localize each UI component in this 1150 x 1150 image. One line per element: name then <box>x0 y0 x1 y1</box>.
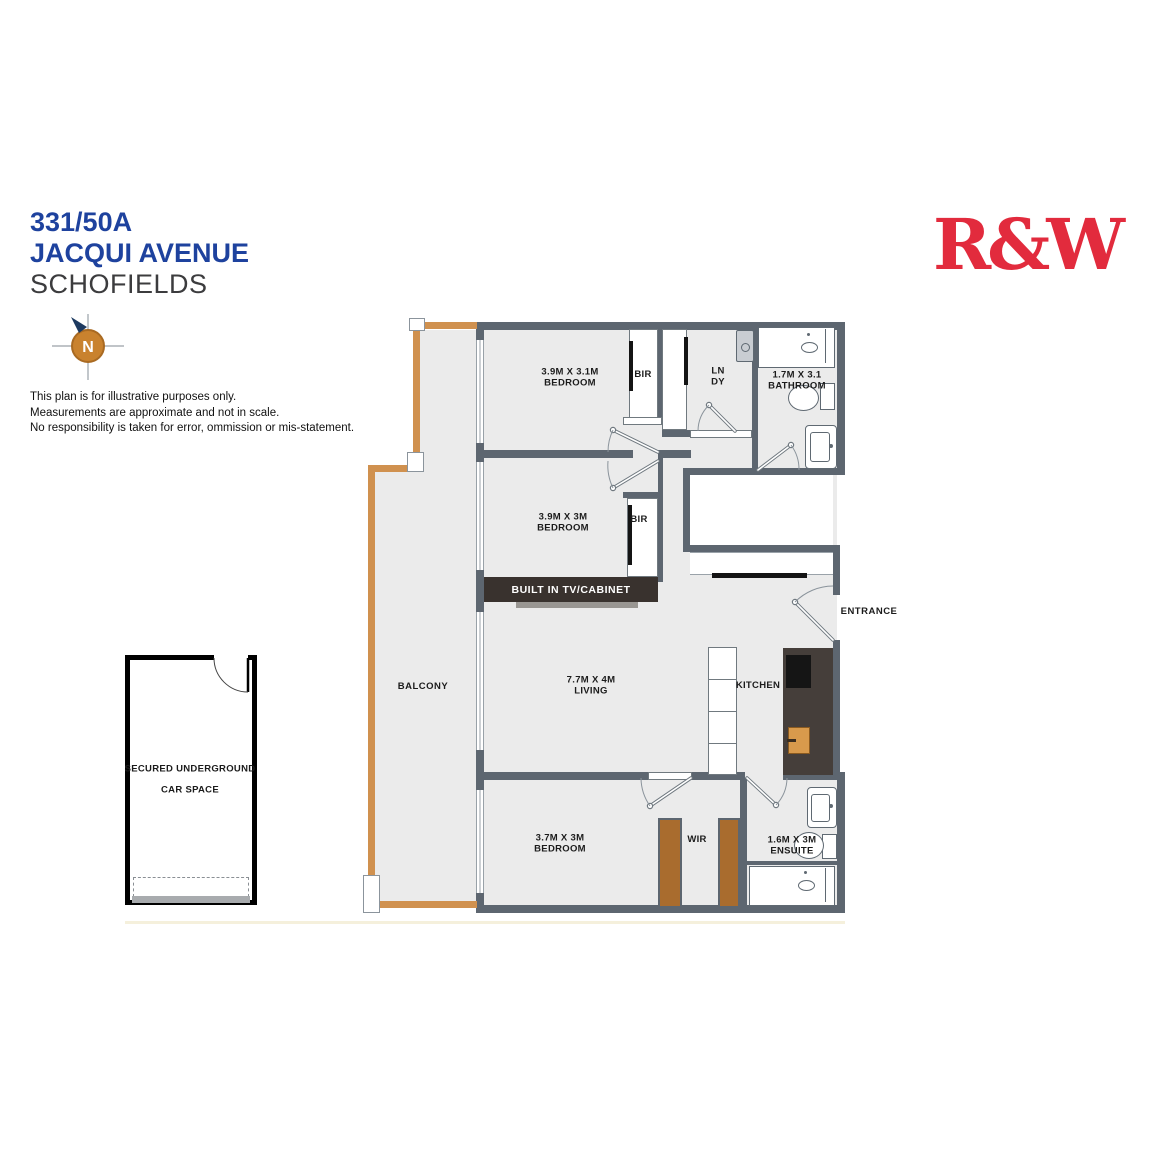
car-space-dashed-line <box>133 877 249 879</box>
bedroom3-dims: 3.7M X 3M <box>534 834 586 845</box>
building-notch <box>690 475 833 545</box>
wall-east-entry-upper <box>833 545 840 595</box>
laundry-line2: DY <box>711 377 725 388</box>
balcony-rail-upper-left <box>413 322 420 459</box>
suburb-name: SCHOFIELDS <box>30 269 249 300</box>
agency-logo: R&W <box>933 203 1121 286</box>
car-space-entry-bar <box>132 896 250 903</box>
balcony-post <box>409 318 425 331</box>
balcony-label: BALCONY <box>398 682 448 693</box>
ground-line <box>125 921 845 924</box>
bedroom1-label: 3.9M X 3.1M BEDROOM <box>541 368 598 389</box>
bathroom-shower-icon <box>758 327 835 368</box>
tv-cabinet-shadow <box>516 602 638 608</box>
disclaimer-line: No responsibility is taken for error, om… <box>30 421 354 437</box>
kitchen-cabinet <box>708 711 737 744</box>
tv-cabinet-label: BUILT IN TV/CABINET <box>512 584 631 596</box>
bir2-label: BIR <box>630 515 647 526</box>
wall-bathroom-bottom <box>683 468 845 475</box>
wall-entry-top <box>683 545 840 552</box>
entrance-label: ENTRANCE <box>841 607 898 618</box>
wall-hall-side <box>658 458 663 492</box>
car-space-door-opening <box>214 653 248 662</box>
disclaimer-line: This plan is for illustrative purposes o… <box>30 390 354 406</box>
bedroom3-door-slab <box>648 772 692 780</box>
ensuite-dims: 1.6M X 3M <box>768 836 817 847</box>
window-bedroom2 <box>476 462 484 570</box>
wall-hall-corner <box>658 450 691 458</box>
wall-bedroom1-bottom <box>481 450 633 458</box>
floor-plan-page: 331/50A JACQUI AVENUE SCHOFIELDS R&W N T… <box>0 0 1150 1150</box>
window-bedroom3 <box>476 790 484 893</box>
bathroom-label: 1.7M X 3.1 BATHROOM <box>768 371 826 392</box>
entry-cupboard <box>690 552 833 575</box>
disclaimer: This plan is for illustrative purposes o… <box>30 390 354 437</box>
living-dims: 7.7M X 4M <box>567 676 616 687</box>
address-block: 331/50A JACQUI AVENUE SCHOFIELDS <box>30 207 249 300</box>
kitchen-cabinet <box>708 743 737 775</box>
kitchen-cabinet <box>708 647 737 680</box>
compass-north-label: N <box>82 339 94 356</box>
car-space-dashed-side <box>133 877 135 897</box>
balcony-post <box>363 875 380 913</box>
ensuite-vanity-icon <box>807 787 837 828</box>
ensuite-shower-icon <box>749 866 835 906</box>
bedroom2-dims: 3.9M X 3M <box>537 513 589 524</box>
entry-cupboard-rail <box>712 573 807 578</box>
wardrobe <box>718 818 740 908</box>
compass-icon: N <box>20 305 170 395</box>
living-name: LIVING <box>567 686 616 697</box>
kitchen-label: KITCHEN <box>736 681 780 692</box>
bedroom3-label: 3.7M X 3M BEDROOM <box>534 834 586 855</box>
car-space-label: SECURED UNDERGROUND CAR SPACE <box>125 765 256 796</box>
car-space-line1: SECURED UNDERGROUND <box>125 765 256 776</box>
bir1-rail <box>629 341 633 391</box>
car-space-line2: CAR SPACE <box>125 785 256 796</box>
car-space-dashed-side <box>248 877 250 897</box>
wall-east-top <box>837 322 845 475</box>
wall-ensuite-left <box>740 778 747 908</box>
hall-closet-rail <box>684 337 688 385</box>
kitchen-sink-icon <box>788 727 810 754</box>
washing-machine-icon <box>736 330 754 362</box>
bathroom-name: BATHROOM <box>768 381 826 392</box>
ensuite-name: ENSUITE <box>768 846 817 857</box>
bedroom1-door-slab <box>623 417 662 425</box>
wall-bir2-right <box>658 492 663 582</box>
wall-east-bottom <box>837 772 845 913</box>
kitchen-cabinet <box>708 679 737 712</box>
ensuite-label: 1.6M X 3M ENSUITE <box>768 836 817 857</box>
cooktop-icon <box>786 655 811 688</box>
balcony-floor-upper <box>420 330 477 470</box>
laundry-line1: LN <box>711 367 725 378</box>
unit-number: 331/50A <box>30 207 249 238</box>
bedroom1-dims: 3.9M X 3.1M <box>541 368 598 379</box>
wall-living-bottom-a <box>476 772 648 780</box>
wall-east-entry-lower <box>833 640 840 780</box>
balcony-rail-bottom <box>368 901 477 908</box>
wir-label: WIR <box>687 835 706 846</box>
wall-closet-bottom <box>662 430 692 437</box>
bir1-label: BIR <box>634 370 651 381</box>
bedroom1-name: BEDROOM <box>541 378 598 389</box>
bathroom-dims: 1.7M X 3.1 <box>768 371 826 382</box>
bedroom2-name: BEDROOM <box>537 523 589 534</box>
window-living <box>476 612 484 750</box>
laundry-label: LN DY <box>711 367 725 388</box>
laundry-door-slab <box>690 430 752 438</box>
street-name: JACQUI AVENUE <box>30 238 249 269</box>
ensuite-toilet-tank <box>822 834 837 859</box>
bathroom-vanity-icon <box>805 425 837 469</box>
bedroom2-label: 3.9M X 3M BEDROOM <box>537 513 589 534</box>
balcony-post <box>407 452 424 472</box>
wall-notch-left <box>683 468 690 552</box>
balcony-rail-left <box>368 465 375 905</box>
wall-ensuite-divider <box>747 861 837 865</box>
bedroom3-name: BEDROOM <box>534 844 586 855</box>
window-bedroom1 <box>476 340 484 443</box>
disclaimer-line: Measurements are approximate and not in … <box>30 406 354 422</box>
wardrobe <box>658 818 682 908</box>
living-label: 7.7M X 4M LIVING <box>567 676 616 697</box>
